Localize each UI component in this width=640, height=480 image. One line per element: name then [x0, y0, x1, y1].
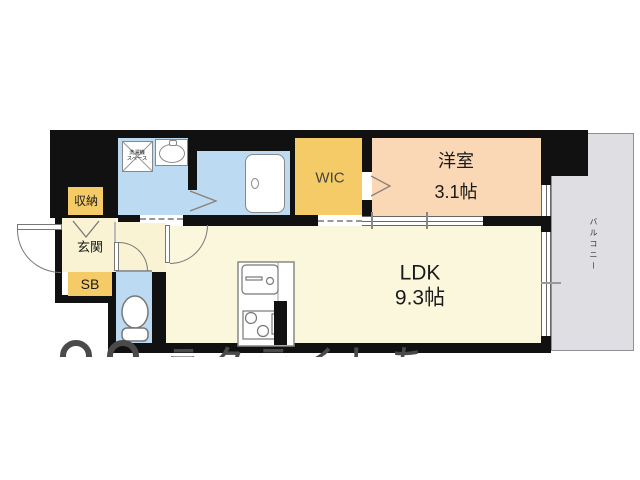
western-ldk-sliding-window	[362, 216, 483, 226]
kitchen-unit	[236, 260, 296, 348]
washing-machine-space: 洗濯機 スペース	[122, 141, 153, 172]
wic-sliding-door	[318, 217, 362, 225]
washroom-sliding-door	[140, 215, 183, 223]
watermark-logo-circle-1	[60, 340, 92, 357]
watermark-logo-circle-2	[107, 340, 139, 357]
window-tick-1	[371, 212, 373, 229]
storage-label: 収納	[74, 195, 98, 207]
wall-sb-bottom	[55, 295, 116, 303]
entrance-step-line	[114, 222, 116, 242]
entrance-label: 玄関	[77, 241, 103, 254]
shoe-box-label: SB	[81, 277, 100, 291]
wic-folding-door-icon	[371, 175, 393, 197]
balcony-window-tick	[541, 282, 561, 284]
washer-space-label: 洗濯機 スペース	[127, 150, 147, 162]
ldk-name: LDK	[400, 263, 441, 284]
ldk-size: 9.3帖	[395, 288, 445, 309]
washbasin-icon	[155, 139, 188, 166]
wall-hall-top	[118, 215, 140, 222]
stove-icon	[243, 311, 278, 339]
wall-top	[118, 130, 551, 138]
wall-right-mid	[541, 216, 551, 232]
watermark: ラクテイしち	[55, 336, 485, 357]
wall-right-upper	[541, 138, 551, 185]
western-room-size: 3.1帖	[434, 183, 477, 201]
bathtub-icon	[245, 154, 285, 213]
balcony-label: バルコニー	[589, 218, 597, 273]
window-tick-2	[426, 212, 428, 229]
wall-wic-room-divider-upper	[362, 138, 372, 172]
ldk-balcony-window	[541, 232, 551, 336]
room-western	[372, 138, 541, 216]
floorplan-canvas: バルコニー 洗濯機 スペース	[0, 0, 640, 480]
room-ldk	[166, 226, 541, 343]
wic-label: WIC	[315, 171, 344, 186]
storage-folding-door-icon	[72, 220, 100, 239]
western-room-name: 洋室	[438, 152, 474, 170]
wall-mid-band-right	[483, 216, 541, 226]
western-room-window	[541, 185, 551, 216]
entrance-door-arc	[17, 230, 61, 273]
watermark-text: ラクテイしち	[167, 337, 437, 357]
wall-bath-top	[188, 130, 295, 151]
bath-folding-door-icon	[190, 189, 218, 213]
